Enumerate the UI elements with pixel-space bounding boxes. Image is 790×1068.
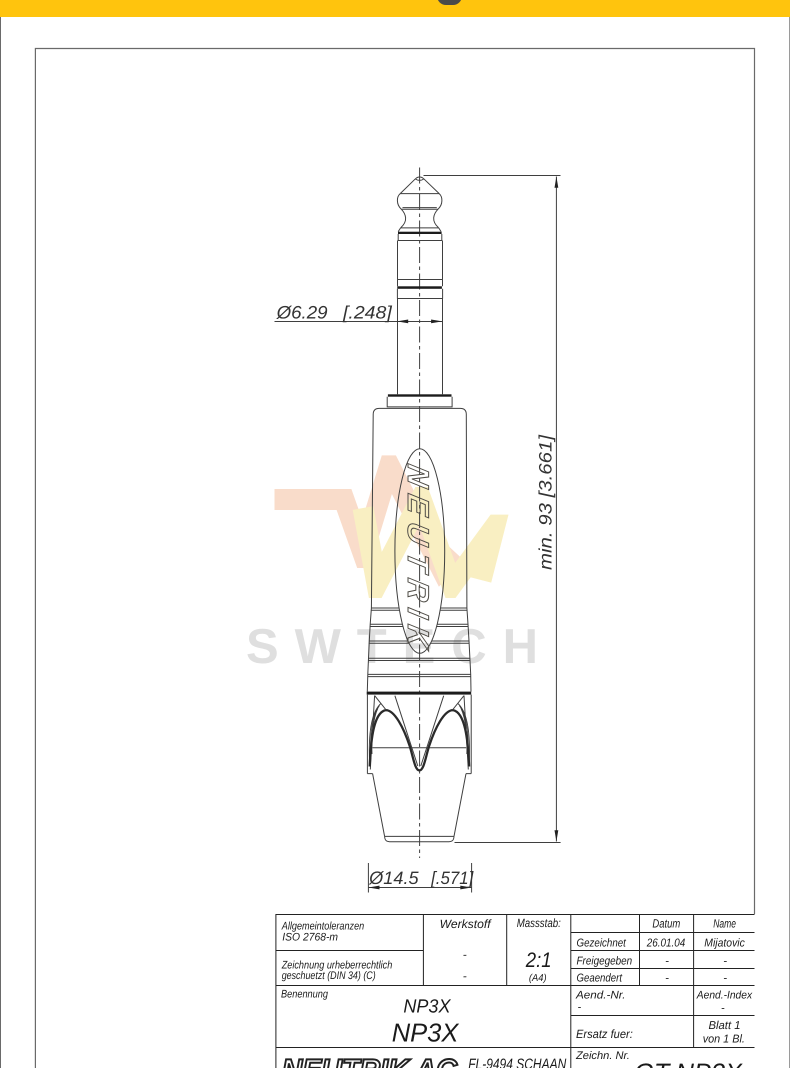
svg-text:(A4): (A4) xyxy=(529,973,547,984)
svg-text:ISO 2768-m: ISO 2768-m xyxy=(282,932,338,944)
svg-text:Freigegeben: Freigegeben xyxy=(577,956,633,968)
svg-text:Ersatz fuer:: Ersatz fuer: xyxy=(576,1027,633,1041)
svg-text:Name: Name xyxy=(713,917,736,931)
svg-text:-: - xyxy=(665,973,669,985)
svg-text:min. 93 [3.661]: min. 93 [3.661] xyxy=(536,434,556,570)
svg-text:Allgemeintoleranzen: Allgemeintoleranzen xyxy=(281,921,364,933)
svg-text:Zeichn. Nr.: Zeichn. Nr. xyxy=(575,1050,630,1062)
svg-text:-: - xyxy=(723,973,727,985)
svg-text:GT-NP3X: GT-NP3X xyxy=(634,1058,743,1068)
svg-text:-: - xyxy=(721,1003,725,1015)
svg-text:[.248]: [.248] xyxy=(342,303,393,323)
svg-text:Mijatovic: Mijatovic xyxy=(704,938,745,950)
svg-text:Aend.-Nr.: Aend.-Nr. xyxy=(575,990,626,1002)
svg-text:Geaendert: Geaendert xyxy=(577,973,623,985)
svg-text:Ø14.5: Ø14.5 xyxy=(368,868,419,888)
svg-text:FL-9494 SCHAAN: FL-9494 SCHAAN xyxy=(468,1056,566,1068)
svg-text:2:1: 2:1 xyxy=(525,949,552,972)
svg-text:Benennung: Benennung xyxy=(281,988,329,1000)
svg-text:Gezeichnet: Gezeichnet xyxy=(577,938,627,950)
svg-text:-: - xyxy=(665,956,669,968)
svg-text:Werkstoff: Werkstoff xyxy=(440,917,493,931)
svg-text:Aend.-Index: Aend.-Index xyxy=(696,990,753,1002)
svg-text:Datum: Datum xyxy=(652,917,680,931)
svg-text:-: - xyxy=(463,969,467,983)
svg-text:-: - xyxy=(723,956,727,968)
svg-text:26.01.04: 26.01.04 xyxy=(646,938,685,950)
svg-text:NP3X: NP3X xyxy=(392,1018,460,1048)
svg-text:geschuetzt (DIN 34) (C): geschuetzt (DIN 34) (C) xyxy=(282,970,376,982)
svg-text:SWTECH: SWTECH xyxy=(246,620,538,674)
svg-text:-: - xyxy=(578,1002,582,1014)
svg-text:-: - xyxy=(463,948,467,962)
svg-text:Ø6.29: Ø6.29 xyxy=(276,303,328,323)
svg-text:Massstab:: Massstab: xyxy=(517,916,561,930)
svg-text:NEUTRIK AG: NEUTRIK AG xyxy=(282,1054,459,1068)
svg-text:[.571]: [.571] xyxy=(430,868,474,888)
svg-text:Blatt 1: Blatt 1 xyxy=(709,1020,741,1032)
svg-text:NP3X: NP3X xyxy=(403,997,451,1018)
svg-text:von 1 Bl.: von 1 Bl. xyxy=(703,1034,745,1046)
